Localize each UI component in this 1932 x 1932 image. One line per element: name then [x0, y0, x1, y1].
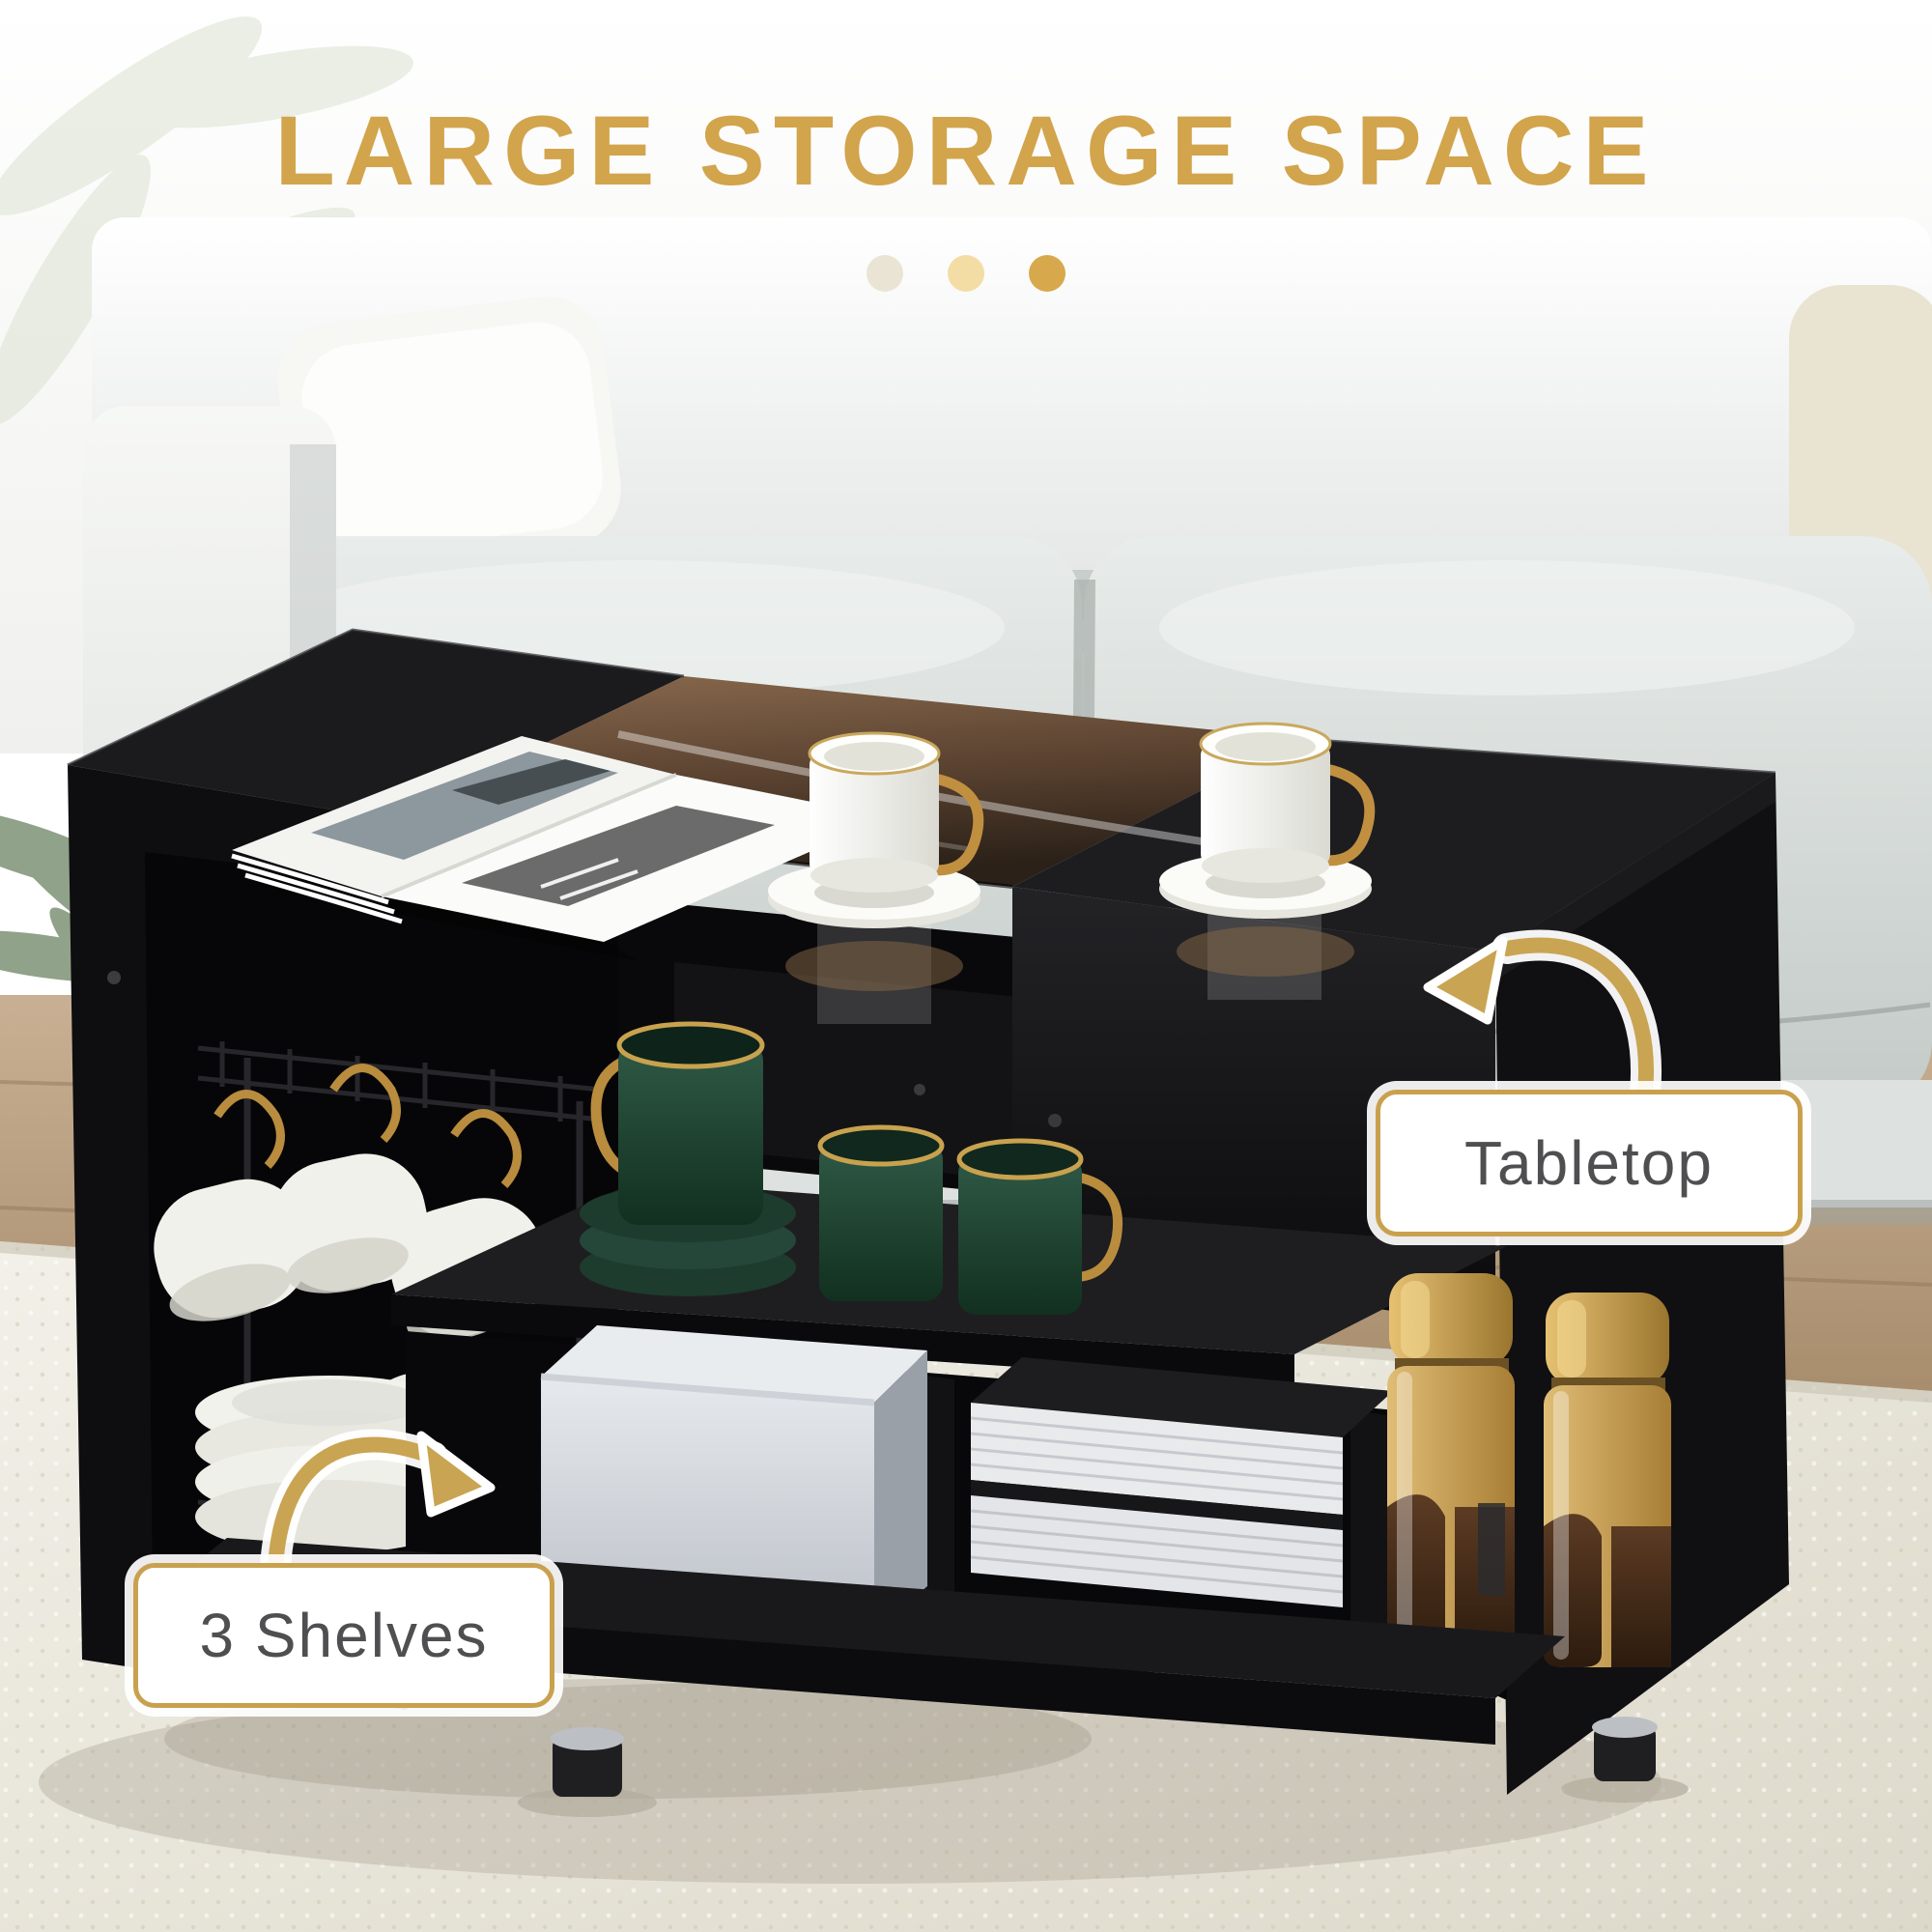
product-marketing-image: LARGE STORAGE SPACE Tabletop 3 Shelves	[0, 0, 1932, 1932]
callout-shelves-label: 3 Shelves	[199, 1600, 488, 1671]
progress-dot	[948, 255, 984, 292]
callout-tabletop-label: Tabletop	[1464, 1127, 1714, 1199]
books	[971, 1357, 1393, 1607]
callout-shelves: 3 Shelves	[133, 1563, 554, 1708]
progress-dot	[1029, 255, 1065, 292]
progress-dot	[867, 255, 903, 292]
callout-tabletop: Tabletop	[1376, 1090, 1803, 1236]
screw	[1048, 1114, 1062, 1127]
progress-dots	[867, 255, 1065, 292]
page-title: LARGE STORAGE SPACE	[0, 95, 1932, 208]
screw	[107, 971, 121, 984]
